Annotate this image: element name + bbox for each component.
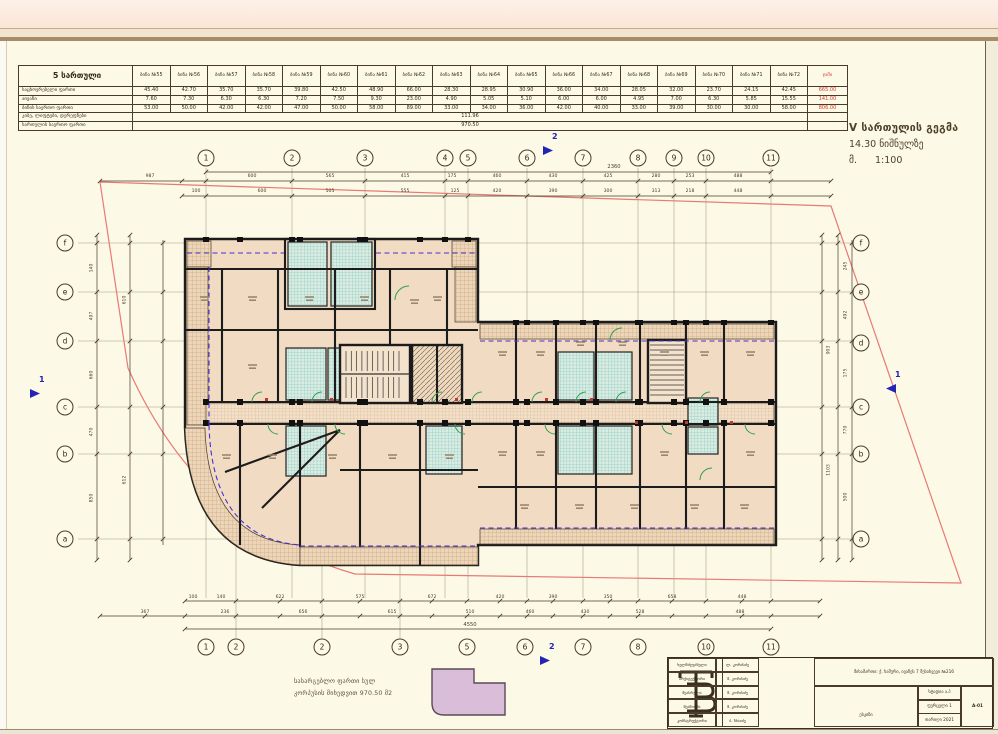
area-value: 4.90 [433,95,471,104]
area-value: 15.55 [770,95,808,104]
area-value: 4.95 [620,95,658,104]
area-value: 36.00 [545,87,583,96]
grid-bubble-bottom: 2 [314,639,331,656]
section-marker-label: 1 [895,370,901,379]
apartment-column-header: ბინა №68 [620,66,658,87]
date-cell: თარიღი 2021 [918,713,961,727]
grid-bubble-top: 1 [198,150,215,167]
span-value: 970.50 [133,122,808,131]
dimension-label: 460 [493,174,502,179]
entry-role: შეასრულა [668,686,716,700]
area-value: 5.05 [470,95,508,104]
area-value: 23.00 [395,95,433,104]
area-value: 34.00 [583,87,621,96]
grid-bubble-bottom: 5 [459,639,476,656]
grid-bubble-top: 6 [519,150,536,167]
dimension-label-vertical: 903 [827,346,832,355]
row-label: კიბე, ლიფტები, დერეფნები [19,113,133,122]
apartment-column-header: ბინა №57 [208,66,246,87]
dimension-label-vertical: 612 [123,476,128,485]
area-value: 35.70 [208,87,246,96]
entry-name: ბ. ჩხაიძე [716,713,759,727]
area-value: 50.00 [170,104,208,113]
entry-name: მ. კორძაძე [716,699,759,713]
grid-bubble-bottom: 1 [198,639,215,656]
row-label: სართულის საერთო ფართი [19,122,133,131]
area-value: 58.00 [358,104,396,113]
dimension-label: 448 [734,189,743,194]
grid-bubble-bottom: 11 [763,639,780,656]
area-value: 6.30 [695,95,733,104]
row-total: 665.00 [808,87,848,96]
grid-bubble-top: 5 [460,150,477,167]
row-label: საცხოვრებელი ფართი [19,87,133,96]
entry-role: ხელმძღვანელი [668,658,716,672]
apartment-column-header: ბინა №67 [583,66,621,87]
key-plan-shape [425,665,515,721]
sheet-number: A-01 [961,686,994,727]
dimension-label: 510 [466,610,475,615]
entry-role: კონსტრუქტორი [668,713,716,727]
table-row: კიბე, ლიფტები, დერეფნები111.96 [19,113,848,122]
dimension-label: 430 [549,174,558,179]
dimension-label: 528 [636,610,645,615]
area-value: 7.50 [320,95,358,104]
grid-bubble-right: d [853,335,870,352]
dimension-label: 505 [326,189,335,194]
title-block-entry: ხელმძღვანელილ. კორძაძე [668,658,759,672]
area-value: 5.85 [733,95,771,104]
dimension-label: 125 [451,189,460,194]
area-value: 42.00 [545,104,583,113]
dimension-label: 565 [326,174,335,179]
grid-bubble-bottom: 2 [228,639,245,656]
area-value: 47.00 [283,104,321,113]
area-value: 42.00 [245,104,283,113]
dimension-label: 656 [299,610,308,615]
section-marker [886,384,896,393]
area-value: 7.00 [658,95,696,104]
dimension-label: 100 [192,189,201,194]
grid-bubble-left: a [57,531,74,548]
dimension-label-vertical: 470 [90,428,95,437]
dimension-label: 488 [734,174,743,179]
area-value: 7.30 [170,95,208,104]
apartment-column-header: ბინა №61 [358,66,396,87]
apartment-column-header: ბინა №66 [545,66,583,87]
area-value: 5.10 [508,95,546,104]
section-marker-label: 2 [552,132,558,141]
dimension-label-vertical: 610 [123,296,128,305]
entry-name: მ. კორძაძე [716,672,759,686]
apartment-column-header: ბინა №56 [170,66,208,87]
dimension-label: 253 [686,174,695,179]
grid-bubble-left: c [57,399,74,416]
area-value: 30.00 [733,104,771,113]
area-value: 32.00 [658,87,696,96]
area-value: 40.00 [583,104,621,113]
dimension-label: 615 [388,610,397,615]
legend: სასარგებლო ფართი სულ კორპუსის მიხედვით 9… [294,676,392,700]
dimension-overall: 2360 [607,164,620,170]
project-name: მისამართი: ქ. ხაშური, ივანეს 7 შესახვევი… [814,658,994,686]
dimension-label: 280 [652,174,661,179]
grid-bubble-bottom: 8 [630,639,647,656]
dimension-label: 600 [248,174,257,179]
apartment-column-header: ბინა №63 [433,66,471,87]
grid-bubble-right: c [853,399,870,416]
drawing-sheet: 5 სართულიბინა №55ბინა №56ბინა №57ბინა №5… [0,0,998,733]
legend-line1: სასარგებლო ფართი სულ [294,676,392,688]
apartment-column-header: ბინა №65 [508,66,546,87]
title-block: ხელმძღვანელილ. კორძაძეარქიტექტორიმ. კორძ… [667,657,993,729]
dimension-label: 390 [549,189,558,194]
area-value: 6.30 [245,95,283,104]
dimension-label: 100 [189,595,198,600]
title-block-entry: შეასრულამ. კორძაძე [668,686,759,700]
dimension-label: 367 [141,610,150,615]
dimension-label: 218 [686,189,695,194]
dimension-label: 987 [146,174,155,179]
dimension-label: 555 [401,189,410,194]
dimension-label: 460 [526,610,535,615]
drawing-title-line1: V სართულის გეგმა [849,122,995,134]
grid-bubble-top: 11 [763,150,780,167]
sheet-cell: ფურცელი 1 [918,700,961,714]
dimension-label: 425 [604,174,613,179]
section-marker-label: 2 [549,642,555,651]
area-table-grid: 5 სართულიბინა №55ბინა №56ბინა №57ბინა №5… [18,65,848,131]
area-value: 28.95 [470,87,508,96]
area-value: 53.00 [133,104,171,113]
area-value: 36.00 [508,104,546,113]
row-total: 141.00 [808,95,848,104]
area-value: 7.60 [133,95,171,104]
dimension-label: 350 [604,595,613,600]
grid-bubble-left: d [57,333,74,350]
dimension-label: 420 [493,189,502,194]
dimension-label-vertical: 492 [844,311,849,320]
entry-role: არქიტექტორი [668,672,716,686]
dimension-label-vertical: 1103 [827,464,832,476]
entry-name: მ. კორძაძე [716,686,759,700]
apartment-column-header: ბინა №62 [395,66,433,87]
area-value: 48.90 [358,87,396,96]
apartment-column-header: ბინა №58 [245,66,283,87]
table-title: 5 სართული [19,66,133,87]
table-row: სართულის საერთო ფართი970.50 [19,122,848,131]
legend-line2: კორპუსის მიხედვით 970.50 მ2 [294,688,392,700]
area-value: 45.40 [133,87,171,96]
area-value: 58.00 [770,104,808,113]
area-value: 6.00 [583,95,621,104]
dimension-label-vertical: 245 [844,262,849,271]
apartment-column-header: ბინა №55 [133,66,171,87]
grid-bubble-left: f [57,235,74,252]
dimension-label-vertical: 497 [90,312,95,321]
dimension-label: 415 [401,174,410,179]
table-row: ბინის საერთო ფართი53.0050.0042.0042.0047… [19,104,848,113]
area-value: 6.30 [208,95,246,104]
drawing-name: ესკიზი [814,686,918,727]
grid-bubble-top: 2 [284,150,301,167]
area-value: 28.30 [433,87,471,96]
area-value: 33.00 [620,104,658,113]
stage-cell: სტადია ა.პ [918,686,961,700]
row-total: 806.00 [808,104,848,113]
scale-prefix: მ. [849,155,857,166]
grid-bubble-left: e [57,284,74,301]
entry-role: შეამოწმა [668,699,716,713]
grid-bubble-top: 9 [666,150,683,167]
dimension-label: 448 [738,595,747,600]
grid-bubble-right: f [853,235,870,252]
dimension-overall: 4550 [463,622,476,628]
dimension-label: 658 [668,595,677,600]
grid-bubble-top: 8 [630,150,647,167]
dimension-label-vertical: 500 [844,493,849,502]
dimension-label: 175 [448,174,457,179]
dimension-label: 488 [736,610,745,615]
dimension-label: 300 [604,189,613,194]
section-marker [540,656,550,665]
area-value: 6.00 [545,95,583,104]
grid-bubble-bottom: 7 [575,639,592,656]
dimension-label: 575 [356,595,365,600]
drawing-title: V სართულის გეგმა 14.30 ნიშნულზე მ. 1:100 [849,122,995,166]
title-block-entry: არქიტექტორიმ. კორძაძე [668,672,759,686]
section-marker [543,146,553,155]
table-row: საცხოვრებელი ფართი45.4042.7035.7035.7039… [19,87,848,96]
apartment-column-header: ბინა №72 [770,66,808,87]
area-value: 89.00 [395,104,433,113]
apartment-column-header: ბინა №70 [695,66,733,87]
area-value: 42.00 [208,104,246,113]
grid-bubble-left: b [57,446,74,463]
grid-bubble-right: b [853,446,870,463]
section-marker-label: 1 [39,375,45,384]
area-value: 42.70 [170,87,208,96]
area-table: 5 სართულიბინა №55ბინა №56ბინა №57ბინა №5… [18,65,848,131]
area-value: 39.80 [283,87,321,96]
dimension-label-vertical: 850 [90,494,95,503]
dimension-label: 672 [428,595,437,600]
grid-bubble-top: 4 [437,150,454,167]
area-value: 33.00 [433,104,471,113]
area-value: 30.00 [695,104,733,113]
title-block-entry: კონსტრუქტორიბ. ჩხაიძე [668,713,759,727]
row-label: ბინის საერთო ფართი [19,104,133,113]
apartment-column-header: ბინა №59 [283,66,321,87]
area-value: 30.90 [508,87,546,96]
dimension-label: 430 [581,610,590,615]
grid-bubble-right: e [853,284,870,301]
dimension-label-vertical: 770 [844,426,849,435]
grid-bubble-top: 10 [698,150,715,167]
area-value: 42.50 [320,87,358,96]
span-value: 111.96 [133,113,808,122]
title-block-entry: შეამოწმამ. კორძაძე [668,699,759,713]
dimension-label: 622 [276,595,285,600]
dimension-label-vertical: 660 [90,371,95,380]
grid-bubble-top: 7 [575,150,592,167]
apartment-column-header: ბინა №71 [733,66,771,87]
scale-value: 1:100 [875,155,902,166]
apartment-column-header: ბინა №69 [658,66,696,87]
dimension-label-vertical: 140 [90,264,95,273]
area-value: 42.45 [770,87,808,96]
grid-bubble-right: a [853,531,870,548]
section-marker [30,389,40,398]
dimension-label: 140 [217,595,226,600]
table-row: აივანი7.607.306.306.307.207.509.3023.004… [19,95,848,104]
grid-bubble-bottom: 10 [698,639,715,656]
area-value: 35.70 [245,87,283,96]
area-value: 39.00 [658,104,696,113]
apartment-column-header: ბინა №60 [320,66,358,87]
area-value: 24.15 [733,87,771,96]
dimension-label: 600 [258,189,267,194]
entry-name: ლ. კორძაძე [716,658,759,672]
grid-bubble-bottom: 3 [392,639,409,656]
row-label: აივანი [19,95,133,104]
dimension-label-vertical: 175 [844,369,849,378]
apartment-column-header: ბინა №64 [470,66,508,87]
area-value: 34.00 [470,104,508,113]
dimension-label: 390 [549,595,558,600]
grid-bubble-top: 3 [357,150,374,167]
dimension-label: 313 [652,189,661,194]
area-value: 23.70 [695,87,733,96]
area-value: 28.05 [620,87,658,96]
dimension-label: 420 [496,595,505,600]
total-column-header: ჯამი [808,66,848,87]
dimension-label: 236 [221,610,230,615]
area-value: 9.30 [358,95,396,104]
area-value: 50.00 [320,104,358,113]
area-value: 7.20 [283,95,321,104]
area-value: 66.00 [395,87,433,96]
grid-bubble-bottom: 6 [517,639,534,656]
title-block-entries: ხელმძღვანელილ. კორძაძეარქიტექტორიმ. კორძ… [668,658,759,727]
drawing-title-line2: 14.30 ნიშნულზე [849,139,995,150]
